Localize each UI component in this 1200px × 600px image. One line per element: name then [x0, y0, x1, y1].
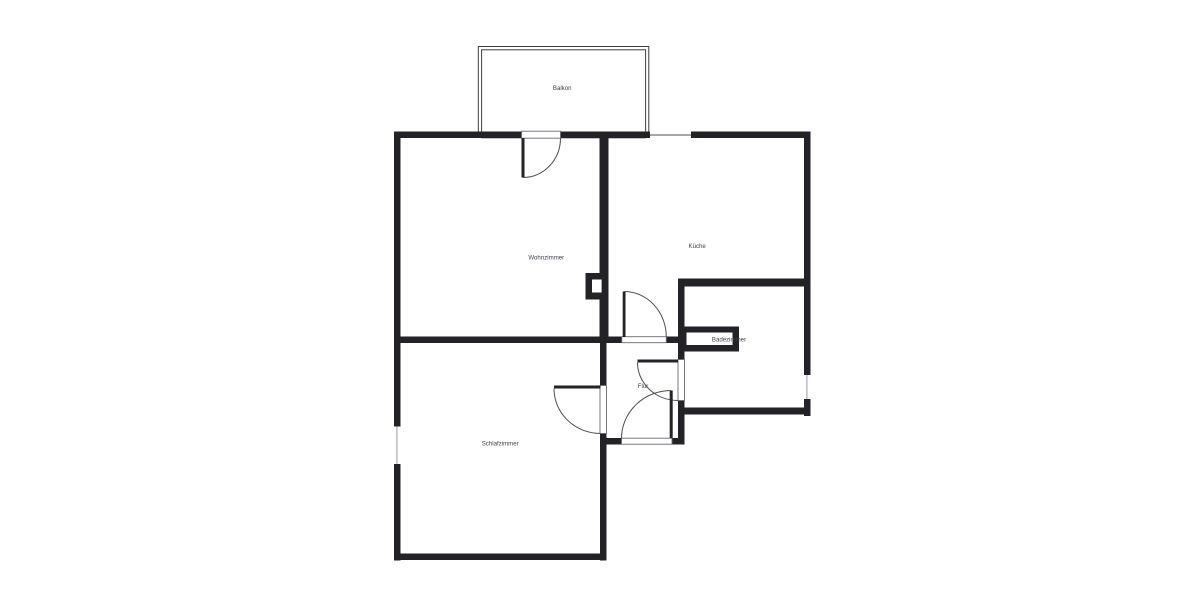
- svg-text:Schlafzimmer: Schlafzimmer: [482, 440, 519, 447]
- svg-text:Wohnzimmer: Wohnzimmer: [528, 254, 564, 261]
- svg-text:Flur: Flur: [638, 383, 649, 390]
- svg-text:Küche: Küche: [689, 243, 707, 250]
- svg-text:Badezimmer: Badezimmer: [712, 336, 746, 343]
- svg-text:Balkon: Balkon: [553, 85, 572, 92]
